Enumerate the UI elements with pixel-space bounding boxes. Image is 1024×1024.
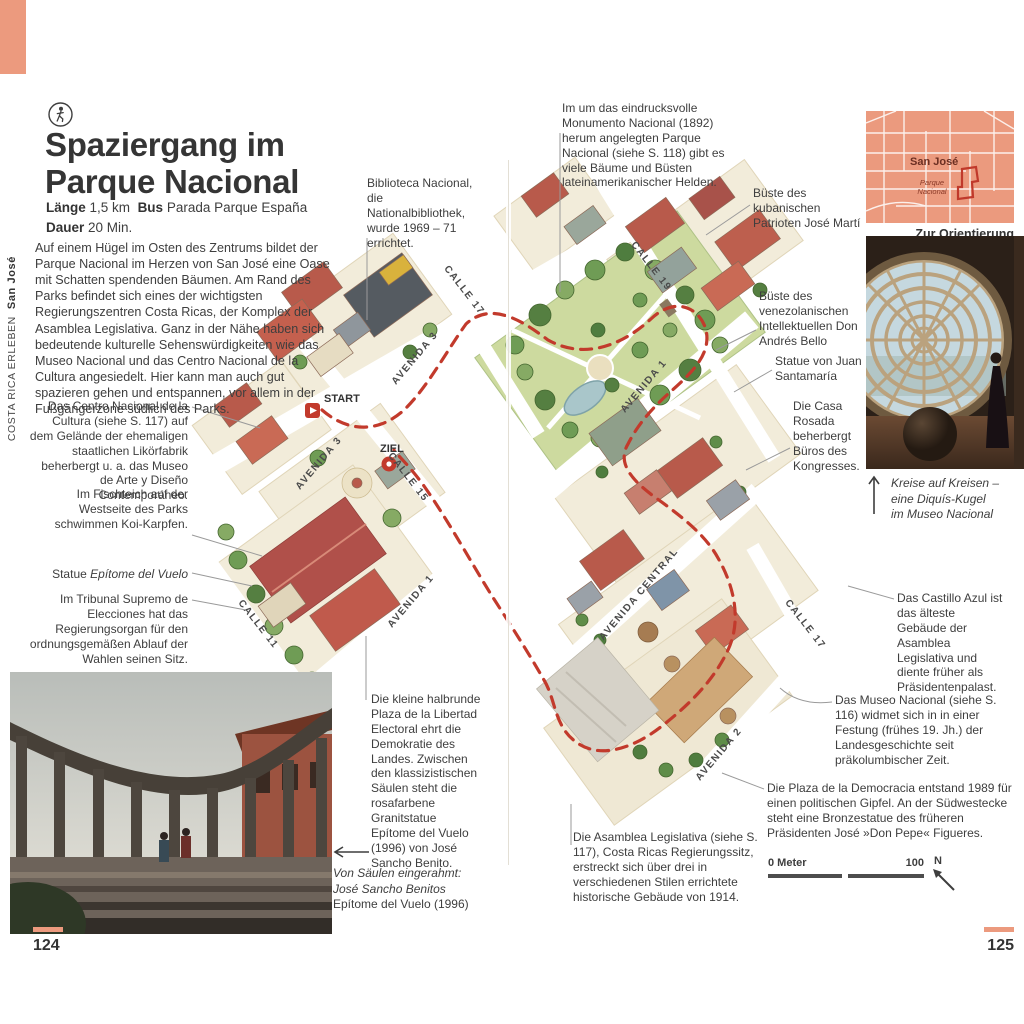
annotation-plaza-libertad: Die kleine halbrunde Plaza de la Liberta… (371, 692, 483, 871)
sidebar-series-label: COSTA RICA ERLEBEN (6, 316, 18, 441)
annotation-monumento: Im um das eindrucksvolle Monumento Nacio… (562, 101, 730, 190)
minimap-city-label: San José (910, 156, 958, 168)
annotation-asamblea: Die Asamblea Legislativa (siehe S. 117),… (573, 830, 763, 904)
page-title-line1: Spaziergang im (45, 127, 375, 164)
statue-name: Epítome del Vuelo (90, 567, 188, 581)
walking-tour-icon (47, 101, 74, 128)
annotation-statue: Statue Epítome del Vuelo (28, 567, 188, 582)
diquis-sphere (903, 407, 957, 461)
tour-meta: Länge 1,5 km Bus Parada Parque España Da… (46, 198, 376, 239)
plaza-libertad-photo (10, 672, 332, 934)
annotation-plaza-democracia: Die Plaza de la Democracia entstand 1989… (767, 781, 1019, 841)
annotation-museo-nacional: Das Museo Nacional (siehe S. 116) widmet… (835, 693, 1017, 767)
scalebar-zero-label: 0 Meter (768, 857, 807, 869)
annotation-castillo-azul: Das Castillo Azul ist das älteste Gebäud… (897, 591, 1007, 695)
sidebar-location-label: San José (6, 256, 18, 309)
guidebook-spread: START ZIEL AVENIDA 3 AVENIDA 3 CALLE 17 … (0, 0, 1024, 1024)
orientation-minimap: San José Parque Nacional (866, 111, 1014, 223)
annotation-fischteich: Im Fischteich auf der Westseite des Park… (28, 487, 188, 532)
minimap-area-label-line1: Parque (920, 178, 944, 187)
water-tower (638, 622, 658, 642)
page-number-tick-left (33, 927, 63, 932)
scalebar-segment-2 (848, 874, 924, 878)
museo-photo-caption-arrow (866, 474, 882, 521)
annotation-tribunal: Im Tribunal Supremo de Elecciones hat da… (28, 592, 188, 666)
annotation-andres-bello: Büste des venezolanischen Intellektuelle… (759, 289, 869, 349)
dauer-value: 20 Min. (88, 220, 132, 235)
page-title-line2: Parque Nacional (45, 164, 375, 201)
scalebar-segment-1 (768, 874, 842, 878)
monumento-plaza (587, 355, 613, 381)
annotation-biblioteca: Biblioteca Nacional, die Nationalbibliot… (367, 176, 482, 250)
laenge-value: 1,5 km (90, 200, 131, 215)
statue-label: Statue (52, 567, 87, 581)
page-title: Spaziergang im Parque Nacional (45, 127, 375, 201)
intro-paragraph: Auf einem Hügel im Osten des Zentrums bi… (35, 240, 340, 417)
page-number-tick-right (984, 927, 1014, 932)
up-arrow-icon (869, 477, 879, 514)
sidebar-color-block (0, 0, 26, 74)
sidebar-section: COSTA RICA ERLEBEN San José (1, 256, 23, 441)
page-seam (506, 160, 511, 865)
dauer-label: Dauer (46, 220, 84, 235)
bus-value: Parada Parque España (167, 200, 307, 215)
plaza-photo-caption-arrow (333, 845, 371, 864)
scalebar-hundred-label: 100 (880, 857, 924, 869)
museo-nacional-photo (866, 236, 1024, 469)
annotation-jose-marti: Büste des kubanischen Patrioten José Mar… (753, 186, 868, 231)
minimap-area-label-line2: Nacional (917, 187, 947, 196)
page-number-right: 125 (964, 937, 1014, 955)
laenge-label: Länge (46, 200, 86, 215)
annotation-casa-rosada: Die Casa Rosada beherbergt Büros des Kon… (793, 399, 878, 473)
museo-photo-caption: Kreise auf Kreisen – eine Diquís-Kugel i… (891, 476, 1021, 523)
left-arrow-icon (335, 847, 369, 857)
north-arrow-icon (926, 860, 960, 894)
annotation-juan-santamaria: Statue von Juan Santamaría (775, 354, 880, 384)
plaza-photo-caption: Von Säulen eingerahmt: José Sancho Benit… (333, 866, 493, 913)
bus-label: Bus (138, 200, 164, 215)
page-number-left: 124 (33, 937, 60, 955)
